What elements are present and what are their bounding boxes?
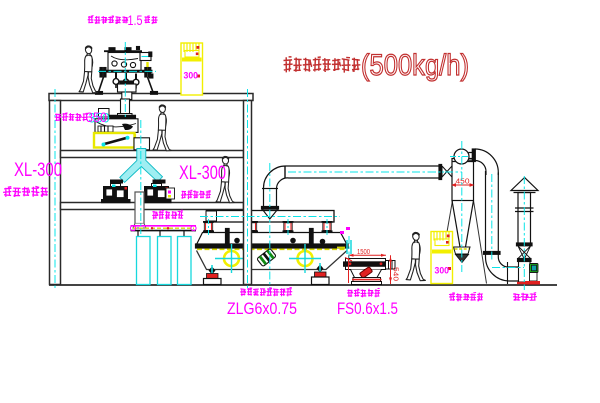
svg-text:1500: 1500 [357,249,370,256]
svg-text:XL-300: XL-300 [179,163,226,184]
svg-text:540: 540 [392,267,399,281]
svg-text:300: 300 [184,71,199,82]
svg-text:450: 450 [456,179,470,186]
svg-text:FS0.6x1.5: FS0.6x1.5 [337,299,398,318]
svg-text:300: 300 [435,266,450,277]
svg-text:ZLG6x0.75: ZLG6x0.75 [227,299,297,318]
svg-text:1.5: 1.5 [128,13,143,28]
svg-text:XL-300: XL-300 [14,160,62,181]
svg-text:(500kg/h): (500kg/h) [361,49,469,82]
svg-text:350: 350 [86,109,107,125]
